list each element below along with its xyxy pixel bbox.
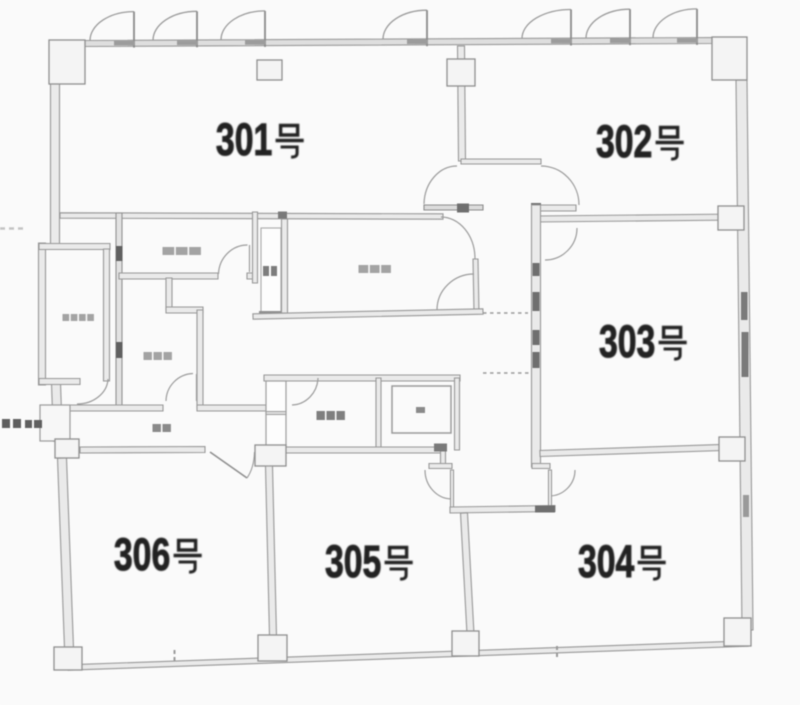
svg-text:303: 303 <box>599 317 655 367</box>
svg-text:302: 302 <box>596 117 652 167</box>
svg-text:301: 301 <box>216 115 272 165</box>
svg-text:306: 306 <box>114 530 170 580</box>
svg-text:305: 305 <box>325 537 381 587</box>
svg-text:304: 304 <box>578 537 634 587</box>
